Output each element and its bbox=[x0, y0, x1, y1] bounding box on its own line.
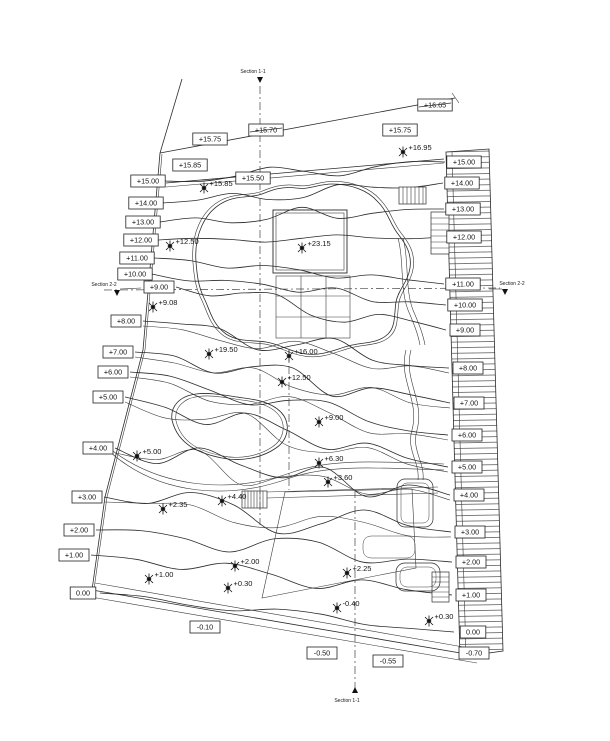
label-text: +15.00 bbox=[453, 158, 475, 167]
right-elevation-label: +13.00 bbox=[446, 203, 480, 215]
spot-elevation: +1.00 bbox=[145, 570, 173, 585]
left-elevation-label: +15.00 bbox=[131, 175, 165, 187]
spot-elevation-text: +23.15 bbox=[308, 239, 331, 248]
right-elevation-label: +10.00 bbox=[448, 299, 482, 311]
spot-elevation-text: +9.08 bbox=[159, 298, 178, 307]
contour-line bbox=[158, 235, 445, 242]
right-elevation-label: +4.00 bbox=[454, 489, 484, 501]
terrace-grid bbox=[276, 276, 350, 338]
label-text: +7.00 bbox=[109, 348, 127, 357]
spot-elevation-text: -0.40 bbox=[343, 599, 360, 608]
spot-elevation: +0.30 bbox=[224, 579, 252, 594]
spot-elevation: +9.00 bbox=[315, 413, 343, 428]
label-text: +15.85 bbox=[179, 161, 201, 170]
spot-elevation-text: +4.40 bbox=[228, 492, 247, 501]
boundary-elevation-label: -0.50 bbox=[307, 647, 337, 659]
contour-lines bbox=[91, 161, 454, 632]
spot-elevation-text: +12.50 bbox=[176, 237, 199, 246]
spot-elevation-text: +6.30 bbox=[325, 454, 344, 463]
spot-elevation: +2.25 bbox=[343, 564, 371, 579]
contour-line bbox=[100, 593, 454, 632]
label-text: +9.00 bbox=[456, 326, 474, 335]
spot-elevation: -0.40 bbox=[333, 599, 360, 614]
spot-elevation: +0.30 bbox=[425, 612, 453, 627]
label-text: +14.00 bbox=[451, 179, 473, 188]
right-elevation-label: +6.00 bbox=[452, 429, 482, 441]
left-elevation-label: +1.00 bbox=[59, 549, 89, 561]
label-text: +2.00 bbox=[70, 526, 88, 535]
spot-elevation-text: +19.50 bbox=[215, 345, 238, 354]
left-elevation-label: +14.00 bbox=[129, 197, 163, 209]
stairs-bottom-right bbox=[432, 572, 449, 602]
spot-elevation: +3.60 bbox=[324, 473, 352, 488]
contour-line bbox=[125, 402, 448, 472]
spot-elevation: +2.35 bbox=[159, 500, 187, 515]
spot-elevation-text: +12.50 bbox=[288, 373, 311, 382]
spot-elevation-text: +2.25 bbox=[353, 564, 372, 573]
label-text: +5.00 bbox=[458, 463, 476, 472]
label-text: +5.00 bbox=[99, 393, 117, 402]
section-marker: Section 2-2 bbox=[91, 282, 141, 296]
label-text: +13.00 bbox=[452, 205, 474, 214]
right-elevation-label: +1.00 bbox=[456, 589, 486, 601]
boundary-elevation-label: +15.75 bbox=[193, 133, 227, 145]
label-text: +6.00 bbox=[458, 431, 476, 440]
top-wall bbox=[166, 159, 444, 187]
contour-line bbox=[143, 321, 449, 368]
label-text: +3.00 bbox=[461, 528, 479, 537]
spot-elevation: +9.08 bbox=[149, 298, 177, 313]
left-elevation-label: +3.00 bbox=[72, 491, 102, 503]
right-elevation-label: -0.70 bbox=[459, 647, 489, 659]
boundary-elevation-label: +15.75 bbox=[383, 124, 417, 136]
left-elevation-label: +11.00 bbox=[120, 252, 154, 264]
spot-elevation-text: +9.00 bbox=[325, 413, 344, 422]
label-text: +12.00 bbox=[130, 236, 152, 245]
spot-elevation-text: +1.00 bbox=[155, 570, 174, 579]
stairs-center bbox=[242, 487, 438, 508]
boundary-elevation-label: -0.55 bbox=[373, 655, 403, 667]
spot-elevation: +16.95 bbox=[399, 143, 432, 158]
left-elevation-label: +2.00 bbox=[64, 524, 94, 536]
left-elevation-label: +7.00 bbox=[103, 346, 133, 358]
left-elevation-label: +8.00 bbox=[111, 315, 141, 327]
spot-elevation: +16.00 bbox=[285, 347, 318, 362]
section-label: Section 2-2 bbox=[499, 281, 525, 287]
right-elevation-label: +2.00 bbox=[456, 556, 486, 568]
label-text: +8.00 bbox=[117, 317, 135, 326]
spot-elevation: +23.15 bbox=[298, 239, 331, 254]
right-elevation-label: +12.00 bbox=[447, 231, 481, 243]
label-text: 0.00 bbox=[466, 628, 480, 637]
label-text: +14.00 bbox=[135, 199, 157, 208]
label-text: +11.00 bbox=[126, 254, 148, 263]
section-arrow-icon bbox=[502, 289, 508, 295]
right-elevation-label: +14.00 bbox=[445, 177, 479, 189]
right-elevation-label: +15.00 bbox=[447, 156, 481, 168]
right-elevation-label: +3.00 bbox=[455, 526, 485, 538]
right-elevation-label: +5.00 bbox=[452, 461, 482, 473]
boundary-elevation-label: +15.85 bbox=[173, 159, 207, 171]
label-text: -0.10 bbox=[197, 623, 213, 632]
label-text: +4.00 bbox=[89, 444, 107, 453]
boundary-elevation-label: +16.65 bbox=[418, 99, 452, 111]
section-label: Section 1-1 bbox=[240, 69, 266, 75]
label-text: +15.75 bbox=[199, 135, 221, 144]
left-elevation-label: +5.00 bbox=[93, 391, 123, 403]
boundary-elevation-label: -0.10 bbox=[190, 621, 220, 633]
right-elevation-label: +9.00 bbox=[450, 324, 480, 336]
section-marker: Section 1-1 bbox=[240, 69, 266, 83]
label-text: +12.00 bbox=[453, 233, 475, 242]
label-text: +1.00 bbox=[462, 591, 480, 600]
contour-line bbox=[104, 502, 451, 537]
site-plan-canvas: +15.00+14.00+13.00+12.00+11.00+10.00+9.0… bbox=[0, 0, 610, 741]
section-label: Section 2-2 bbox=[91, 282, 117, 288]
label-text: +9.00 bbox=[150, 283, 168, 292]
label-text: -0.50 bbox=[314, 649, 330, 658]
left-elevation-label: +12.00 bbox=[124, 234, 158, 246]
contour-line bbox=[176, 287, 446, 330]
spot-elevation-text: +0.30 bbox=[234, 579, 253, 588]
label-text: +1.00 bbox=[65, 551, 83, 560]
label-text: +10.00 bbox=[454, 301, 476, 310]
right-elevation-label: +8.00 bbox=[453, 362, 483, 374]
section-arrow-icon bbox=[352, 687, 358, 693]
section-marker: Section 1-1 bbox=[334, 687, 360, 704]
spot-elevation-text: +2.35 bbox=[169, 500, 188, 509]
left-elevation-label: +4.00 bbox=[83, 442, 113, 454]
contour-line bbox=[115, 450, 450, 500]
section-leader-line bbox=[120, 288, 141, 289]
spot-elevation: +12.50 bbox=[278, 373, 311, 388]
left-elevation-label: 0.00 bbox=[70, 587, 96, 599]
label-text: +7.00 bbox=[460, 399, 478, 408]
planters bbox=[363, 479, 440, 591]
label-text: +3.00 bbox=[78, 493, 96, 502]
boundary-elevation-label: +15.50 bbox=[236, 172, 270, 184]
spot-elevation-text: +16.00 bbox=[295, 347, 318, 356]
left-elevation-label: +13.00 bbox=[126, 216, 160, 228]
section-arrow-icon bbox=[257, 77, 263, 83]
label-text: +4.00 bbox=[460, 491, 478, 500]
spot-elevation-text: +0.30 bbox=[435, 612, 454, 621]
label-text: +15.00 bbox=[137, 177, 159, 186]
label-text: +15.75 bbox=[389, 126, 411, 135]
spot-elevation: +19.50 bbox=[205, 345, 238, 360]
label-text: +10.00 bbox=[124, 270, 146, 279]
stairs-top-right bbox=[399, 187, 426, 204]
label-text: +15.50 bbox=[242, 174, 264, 183]
steps-right-wall bbox=[431, 212, 449, 254]
boundary-elevation-label: +15.70 bbox=[249, 124, 283, 136]
site-plan-page: +15.00+14.00+13.00+12.00+11.00+10.00+9.0… bbox=[0, 0, 610, 741]
label-text: +6.00 bbox=[104, 368, 122, 377]
section-arrow-icon bbox=[114, 290, 120, 296]
label-text: -0.70 bbox=[466, 649, 482, 658]
right-elevation-label: 0.00 bbox=[460, 626, 486, 638]
label-text: +2.00 bbox=[462, 558, 480, 567]
label-text: +11.00 bbox=[452, 280, 474, 289]
label-text: +8.00 bbox=[459, 364, 477, 373]
left-elevation-label: +10.00 bbox=[118, 268, 152, 280]
lower-terrace bbox=[262, 489, 416, 598]
contour-line bbox=[154, 258, 444, 284]
spot-elevation-text: +2.00 bbox=[241, 557, 260, 566]
right-elevation-label: +7.00 bbox=[454, 397, 484, 409]
left-elevation-label: +6.00 bbox=[98, 366, 128, 378]
label-text: 0.00 bbox=[76, 589, 90, 598]
left-elevation-label: +9.00 bbox=[144, 281, 174, 293]
spot-elevation: +6.30 bbox=[315, 454, 343, 469]
label-text: -0.55 bbox=[380, 657, 396, 666]
section-label: Section 1-1 bbox=[334, 698, 360, 704]
spot-elevation-text: +5.00 bbox=[143, 447, 162, 456]
spot-elevation-text: +15.85 bbox=[210, 179, 233, 188]
spot-elevation-text: +3.60 bbox=[334, 473, 353, 482]
right-elevation-label: +11.00 bbox=[446, 278, 480, 290]
label-text: +13.00 bbox=[132, 218, 154, 227]
spot-elevation-text: +16.95 bbox=[409, 143, 432, 152]
